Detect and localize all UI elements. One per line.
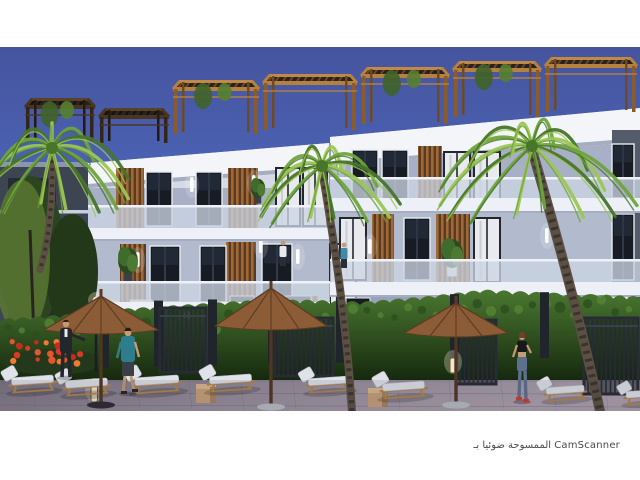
flower: [44, 340, 49, 345]
hedge-texture: [626, 306, 633, 313]
hedge-pillar: [540, 292, 549, 358]
sconce-light: [291, 244, 305, 270]
camscanner-watermark: الممسوحة ضوئيا بـ CamScanner: [473, 440, 620, 451]
flower: [35, 349, 41, 355]
pergola-vine: [41, 101, 59, 127]
hedge-texture: [348, 304, 358, 314]
flower: [10, 339, 15, 344]
flower: [47, 350, 54, 357]
pergola-vine: [194, 83, 212, 109]
hedge-texture: [500, 305, 509, 314]
umbrella-finial: [455, 296, 458, 304]
hedge-texture: [19, 327, 25, 333]
render-scene: [0, 47, 640, 411]
hedge-texture: [597, 295, 606, 304]
pergola-vine: [218, 83, 232, 101]
flower: [14, 352, 21, 359]
metal-gate: [160, 308, 206, 372]
pergola-vine: [60, 101, 74, 119]
sconce-light: [185, 172, 199, 198]
pergola-vine: [499, 64, 513, 82]
hedge-texture: [514, 305, 523, 314]
hedge-texture: [486, 306, 496, 316]
pergola-vine: [407, 70, 421, 88]
hedge-texture: [611, 308, 619, 316]
sconce-light: [363, 234, 377, 260]
hedge-texture: [363, 307, 370, 314]
hedge-texture: [391, 314, 397, 320]
hedge-texture: [404, 303, 412, 311]
umbrella-finial: [270, 281, 273, 289]
flower: [35, 357, 39, 361]
pergola-vine: [475, 64, 493, 90]
hedge-texture: [583, 299, 592, 308]
umbrella-finial: [100, 289, 103, 297]
hedge-texture: [378, 312, 384, 318]
hedge-texture: [555, 302, 566, 313]
foreground-shade: [0, 380, 640, 411]
flower: [48, 357, 55, 364]
pergola-vine: [383, 70, 401, 96]
scanned-page: { "footer": { "text": "الممسوحة ضوئيا بـ…: [0, 0, 640, 480]
hedge-texture: [4, 324, 11, 331]
hedge-texture: [418, 306, 426, 314]
flower: [10, 358, 16, 364]
flower: [74, 360, 81, 367]
flower: [77, 351, 83, 357]
hedge-texture: [32, 331, 40, 339]
hedge-texture: [529, 301, 536, 308]
hedge-pillar: [208, 299, 217, 365]
flower: [16, 343, 23, 350]
hedge-texture: [473, 299, 482, 308]
flower: [25, 346, 30, 351]
flower: [34, 340, 38, 344]
scanned-photo: [0, 47, 640, 411]
